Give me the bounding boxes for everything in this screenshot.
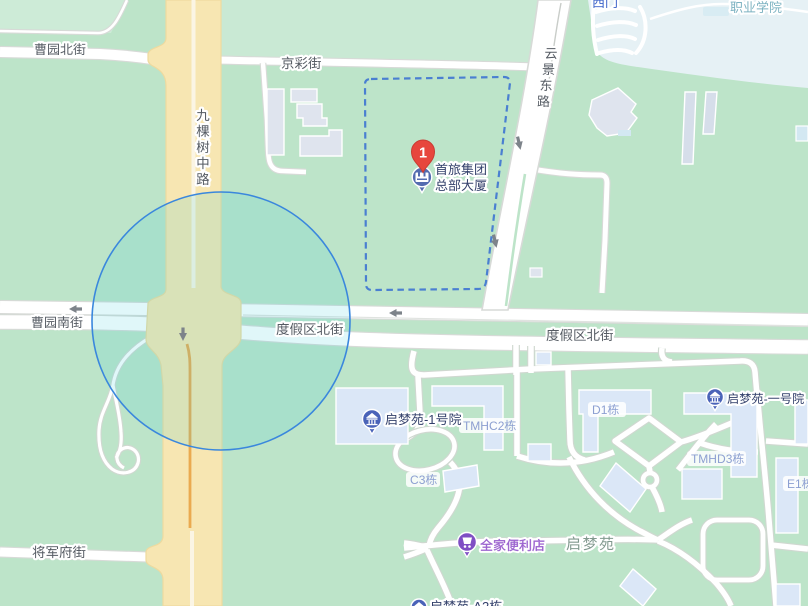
svg-text:-: - bbox=[764, 392, 768, 406]
svg-text:3: 3 bbox=[419, 473, 426, 487]
svg-text:A: A bbox=[473, 599, 482, 606]
svg-text:D: D bbox=[717, 452, 726, 466]
svg-text:E: E bbox=[787, 477, 795, 491]
svg-text:1: 1 bbox=[601, 403, 608, 417]
svg-text:2: 2 bbox=[482, 599, 489, 606]
svg-text:1: 1 bbox=[419, 146, 427, 162]
svg-text:D: D bbox=[592, 403, 601, 417]
svg-text:1: 1 bbox=[428, 412, 435, 427]
svg-text:C: C bbox=[489, 419, 498, 433]
svg-text:H: H bbox=[480, 419, 489, 433]
svg-text:C: C bbox=[410, 473, 419, 487]
svg-text:3: 3 bbox=[726, 452, 733, 466]
svg-text:H: H bbox=[708, 452, 717, 466]
svg-text:1: 1 bbox=[795, 477, 802, 491]
svg-text:M: M bbox=[470, 419, 480, 433]
svg-text:M: M bbox=[698, 452, 708, 466]
svg-text:2: 2 bbox=[498, 419, 505, 433]
